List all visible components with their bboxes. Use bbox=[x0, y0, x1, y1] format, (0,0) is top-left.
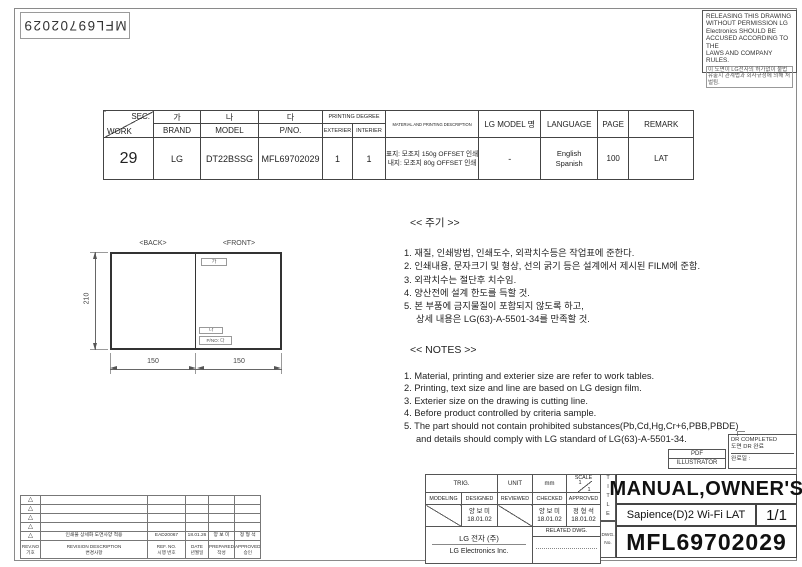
revision-ref: EAD20067 bbox=[148, 532, 186, 541]
rev-no-label: REV.NO bbox=[21, 544, 40, 549]
cover-fold-line bbox=[195, 252, 196, 350]
approved-signature: 정 형 석 18.01.02 bbox=[567, 505, 601, 527]
revision-date-empty bbox=[186, 523, 209, 532]
rev-prepared-label: PREPARED bbox=[209, 544, 234, 549]
revision-date-empty bbox=[186, 514, 209, 523]
revision-ref-empty bbox=[148, 496, 186, 505]
pno-header: P/NO. bbox=[259, 124, 323, 138]
revision-prepared-empty bbox=[209, 505, 235, 514]
na-placement-box: 나 bbox=[199, 327, 223, 334]
revision-triangle-icon: △ bbox=[21, 496, 41, 505]
page-value: 100 bbox=[598, 138, 629, 180]
printing-degree-header: PRINTING DEGREE bbox=[323, 111, 386, 124]
brand-header: BRAND bbox=[154, 124, 201, 138]
arrow-right-icon bbox=[274, 366, 281, 370]
revision-table: △ △ △ △ △ 인쇄물 상세화 도면사양 적용 EAD20067 18.01… bbox=[20, 495, 261, 559]
height-dimension: 210 bbox=[84, 286, 91, 312]
language-header: LANGUAGE bbox=[541, 111, 598, 138]
page-header: PAGE bbox=[598, 111, 629, 138]
notes-english: << NOTES >> 1. Material, printing and ex… bbox=[404, 344, 738, 445]
remark-value: LAT bbox=[629, 138, 694, 180]
no-label: No. bbox=[604, 541, 611, 546]
revision-prepared: 양 보 미 bbox=[209, 532, 235, 541]
dr-date-label: 완료일 : bbox=[731, 456, 794, 463]
company-cell: LG 전자 (주) LG Electronics Inc. bbox=[426, 527, 533, 564]
material-value-cell: 표지: 모조지 150g OFFSET 인쇄 내지: 모조지 80g OFFSE… bbox=[386, 138, 479, 180]
revision-approved-empty bbox=[234, 514, 261, 523]
modeling-na-slash bbox=[426, 505, 462, 527]
checked-date: 18.01.02 bbox=[533, 516, 566, 524]
note-line: 1. Material, printing and exterier size … bbox=[404, 370, 738, 383]
related-dwg-label: RELATED DWG. bbox=[533, 527, 600, 537]
dr-completed-label: DR COMPLETED bbox=[731, 437, 794, 444]
rev-no-header: REV.NO 기호 bbox=[21, 541, 41, 559]
model-value: DT22BSSG bbox=[201, 138, 259, 180]
dwg-label: DWG. bbox=[601, 533, 614, 538]
related-dwg-cell: RELATED DWG. bbox=[533, 527, 601, 564]
rotated-part-number-box: MFL69702029 bbox=[20, 12, 130, 39]
designed-name: 양 보 미 bbox=[462, 508, 497, 516]
language-value-cell: English Spanish bbox=[541, 138, 598, 180]
dr-completed-box: DR COMPLETED 도면 DR 완료 완료일 : bbox=[728, 434, 797, 469]
revision-triangle-icon: △ bbox=[21, 514, 41, 523]
material-header: MATERIAL AND PRINTING DESCRIPTION bbox=[388, 122, 476, 127]
note-line: 3. 외곽치수는 절단후 치수임. bbox=[404, 274, 700, 287]
revision-ref-empty bbox=[148, 514, 186, 523]
checked-header: CHECKED bbox=[533, 493, 567, 505]
language-line-2: Spanish bbox=[541, 159, 597, 169]
revision-approved-empty bbox=[234, 505, 261, 514]
revision-prepared-empty bbox=[209, 496, 235, 505]
material-line-2: 내지: 모조지 80g OFFSET 인쇄 bbox=[386, 159, 478, 168]
revision-desc-empty bbox=[41, 523, 148, 532]
horizontal-dimension-line bbox=[196, 369, 282, 370]
sec-label: SEC. bbox=[131, 112, 150, 121]
rev-date-label-kr: 년월일 bbox=[186, 550, 208, 555]
work-sec-value: 29 bbox=[104, 138, 154, 180]
modeling-header: MODELING bbox=[426, 493, 462, 505]
scale-numerator: 1 bbox=[579, 480, 582, 486]
work-spec-table: SEC. WORK 가 나 다 PRINTING DEGREE MATERIAL… bbox=[103, 110, 694, 180]
notes-korean-title: << 주기 >> bbox=[404, 217, 700, 230]
pno-placement-box: P/NO: 다 bbox=[199, 336, 232, 345]
document-title: MANUAL,OWNER'S bbox=[616, 474, 797, 504]
rev-no-label-kr: 기호 bbox=[21, 550, 40, 555]
warning-korean-box: 이 도면이 LG전자의 허가없이 불법 유출시 관계법과 회사규정에 의해 처벌… bbox=[706, 66, 793, 88]
pno-value: MFL69702029 bbox=[259, 138, 323, 180]
note-line: 2. 인쇄내용, 문자크기 및 형상, 선의 굵기 등은 설계에서 제시된 FI… bbox=[404, 260, 700, 273]
interier-header: INTERIER bbox=[353, 124, 386, 138]
release-warning-box: RELEASING THIS DRAWING WITHOUT PERMISSIO… bbox=[702, 10, 797, 73]
dwg-no-cell: DWG. No. bbox=[600, 521, 616, 558]
col-da-label: 다 bbox=[259, 111, 323, 124]
note-line: 5. The part should not contain prohibite… bbox=[404, 420, 738, 433]
designed-date: 18.01.02 bbox=[462, 516, 497, 524]
arrow-down-icon bbox=[93, 343, 97, 350]
note-line: 상세 내용은 LG(63)-A-5501-34를 만족할 것. bbox=[404, 313, 700, 326]
horizontal-dimension-line bbox=[110, 369, 196, 370]
note-line: 5. 본 부품에 금지물질이 포함되지 않도록 하고, bbox=[404, 300, 700, 313]
revision-date: 18.01.26 bbox=[186, 532, 209, 541]
rev-desc-header: REVISION DESCRIPTION 변경사항 bbox=[41, 541, 148, 559]
designed-signature: 양 보 미 18.01.02 bbox=[462, 505, 498, 527]
material-header-cell: MATERIAL AND PRINTING DESCRIPTION bbox=[386, 111, 479, 138]
back-panel-label: <BACK> bbox=[110, 240, 196, 247]
sheet-number: 1/1 bbox=[756, 504, 797, 526]
exterier-header: EXTERIER bbox=[323, 124, 353, 138]
arrow-right-icon bbox=[189, 366, 196, 370]
drawing-number: MFL69702029 bbox=[616, 526, 797, 558]
ga-placement-box: 가 bbox=[201, 258, 227, 266]
rev-approved-label: APPROVED bbox=[235, 544, 261, 549]
company-name-en: LG Electronics Inc. bbox=[426, 547, 532, 556]
revision-approved-empty bbox=[234, 523, 261, 532]
related-dwg-dotted-line bbox=[536, 540, 597, 549]
scale-fraction: 11 bbox=[578, 481, 592, 492]
rev-approved-label-kr: 승인 bbox=[235, 550, 261, 555]
rev-prepared-header: PREPARED 작성 bbox=[209, 541, 235, 559]
warning-line: WITHOUT PERMISSION LG bbox=[706, 20, 793, 27]
rev-prepared-label-kr: 작성 bbox=[209, 550, 234, 555]
revision-date-empty bbox=[186, 496, 209, 505]
reviewed-na-slash bbox=[498, 505, 533, 527]
revision-approved-empty bbox=[234, 496, 261, 505]
rev-desc-label-kr: 변경사항 bbox=[41, 550, 147, 555]
checked-name: 양 보 미 bbox=[533, 508, 566, 516]
warning-line-kr: 유출시 관계법과 회사규정에 의해 처벌됨. bbox=[708, 73, 791, 86]
rev-ref-header: REF. NO. 시행 번호 bbox=[148, 541, 186, 559]
revision-desc: 인쇄물 상세화 도면사양 적용 bbox=[41, 532, 148, 541]
reviewed-header: REVIEWED bbox=[498, 493, 533, 505]
revision-prepared-empty bbox=[209, 514, 235, 523]
rev-approved-header: APPROVED 승인 bbox=[234, 541, 261, 559]
unit-value: mm bbox=[533, 475, 567, 493]
trig-label: TRIG. bbox=[426, 475, 498, 493]
model-header: MODEL bbox=[201, 124, 259, 138]
vertical-dimension-line bbox=[95, 252, 96, 350]
warning-line: ACCUSED ACCORDING TO THE bbox=[706, 35, 793, 50]
approved-header: APPROVED bbox=[567, 493, 601, 505]
unit-label: UNIT bbox=[498, 475, 533, 493]
width-dimension-left: 150 bbox=[110, 358, 196, 365]
designed-header: DESIGNED bbox=[462, 493, 498, 505]
rotated-part-number: MFL69702029 bbox=[23, 18, 127, 33]
note-line: 4. Before product controlled by criteria… bbox=[404, 407, 738, 420]
scale-cell: SCALE11 bbox=[567, 475, 601, 493]
revision-prepared-empty bbox=[209, 523, 235, 532]
arrow-left-icon bbox=[197, 366, 204, 370]
arrow-up-icon bbox=[93, 252, 97, 259]
cover-outline bbox=[110, 252, 282, 350]
revision-desc-empty bbox=[41, 514, 148, 523]
revision-date-empty bbox=[186, 505, 209, 514]
note-line: and details should comply with LG standa… bbox=[404, 433, 738, 446]
revision-triangle-icon: △ bbox=[21, 532, 41, 541]
arrow-left-icon bbox=[110, 366, 117, 370]
illustrator-label: ILLUSTRATOR bbox=[669, 459, 725, 468]
note-line: 4. 양산전에 설계 한도를 득할 것. bbox=[404, 287, 700, 300]
col-na-label: 나 bbox=[201, 111, 259, 124]
revision-approved: 정 형 석 bbox=[234, 532, 261, 541]
file-format-box: PDF ILLUSTRATOR bbox=[668, 449, 726, 469]
lg-model-header: LG MODEL 명 bbox=[479, 111, 541, 138]
note-line: 1. 재질, 인쇄방법, 인쇄도수, 외곽치수등은 작업표에 준한다. bbox=[404, 247, 700, 260]
scale-denominator: 1 bbox=[587, 487, 590, 493]
dr-completed-label-kr: 도면 DR 완료 bbox=[731, 444, 794, 454]
notes-korean: << 주기 >> 1. 재질, 인쇄방법, 인쇄도수, 외곽치수등은 작업표에 … bbox=[404, 217, 700, 326]
material-line-1: 표지: 모조지 150g OFFSET 인쇄 bbox=[386, 150, 478, 159]
language-line-1: English bbox=[541, 149, 597, 159]
pdf-label: PDF bbox=[669, 450, 725, 459]
notes-english-title: << NOTES >> bbox=[404, 344, 738, 357]
drawing-sheet: MFL69702029 RELEASING THIS DRAWING WITHO… bbox=[0, 0, 802, 567]
approval-table: TRIG. UNIT mm SCALE11 MODELING DESIGNED … bbox=[425, 474, 601, 564]
rev-date-header: DATE 년월일 bbox=[186, 541, 209, 559]
warning-line: LAWS AND COMPANY RULES. bbox=[706, 50, 793, 65]
col-ga-label: 가 bbox=[154, 111, 201, 124]
rev-ref-label-kr: 시행 번호 bbox=[148, 550, 185, 555]
sec-work-header-cell: SEC. WORK bbox=[104, 111, 154, 138]
front-panel-label: <FRONT> bbox=[196, 240, 282, 247]
checked-signature: 양 보 미 18.01.02 bbox=[533, 505, 567, 527]
note-line: 2. Printing, text size and line are base… bbox=[404, 382, 738, 395]
revision-triangle-icon: △ bbox=[21, 523, 41, 532]
remark-header: REMARK bbox=[629, 111, 694, 138]
interier-value: 1 bbox=[353, 138, 386, 180]
work-label: WORK bbox=[107, 127, 132, 136]
revision-ref-empty bbox=[148, 523, 186, 532]
warning-line: RELEASING THIS DRAWING bbox=[706, 13, 793, 20]
brand-value: LG bbox=[154, 138, 201, 180]
company-name-kr: LG 전자 (주) bbox=[432, 534, 526, 545]
width-dimension-right: 150 bbox=[196, 358, 282, 365]
revision-triangle-icon: △ bbox=[21, 505, 41, 514]
revision-ref-empty bbox=[148, 505, 186, 514]
document-subtitle: Sapience(D)2 Wi-Fi LAT bbox=[616, 504, 756, 526]
warning-line: Electronics SHOULD BE bbox=[706, 28, 793, 35]
revision-desc-empty bbox=[41, 496, 148, 505]
approved-name: 정 형 석 bbox=[567, 508, 600, 516]
approved-date: 18.01.02 bbox=[567, 516, 600, 524]
exterier-value: 1 bbox=[323, 138, 353, 180]
lg-model-value: - bbox=[479, 138, 541, 180]
note-line: 3. Exterier size on the drawing is cutti… bbox=[404, 395, 738, 408]
revision-desc-empty bbox=[41, 505, 148, 514]
